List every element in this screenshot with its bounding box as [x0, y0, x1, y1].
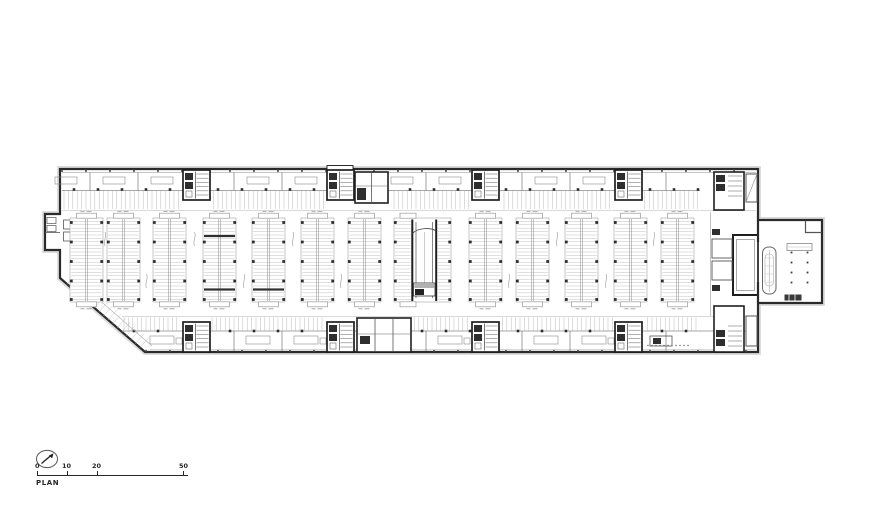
plan-title: PLAN	[36, 479, 59, 487]
scale-label-0: 0	[35, 462, 40, 470]
title-block: 0 10 20 50 PLAN	[34, 448, 214, 498]
scale-label-50: 50	[179, 462, 188, 470]
scale-label-20: 20	[92, 462, 101, 470]
plan-central-ramp	[394, 213, 451, 307]
scale-bar-line	[37, 475, 188, 476]
architectural-plan-sheet: 0 10 20 50 PLAN	[0, 0, 882, 526]
scale-label-10: 10	[62, 462, 71, 470]
